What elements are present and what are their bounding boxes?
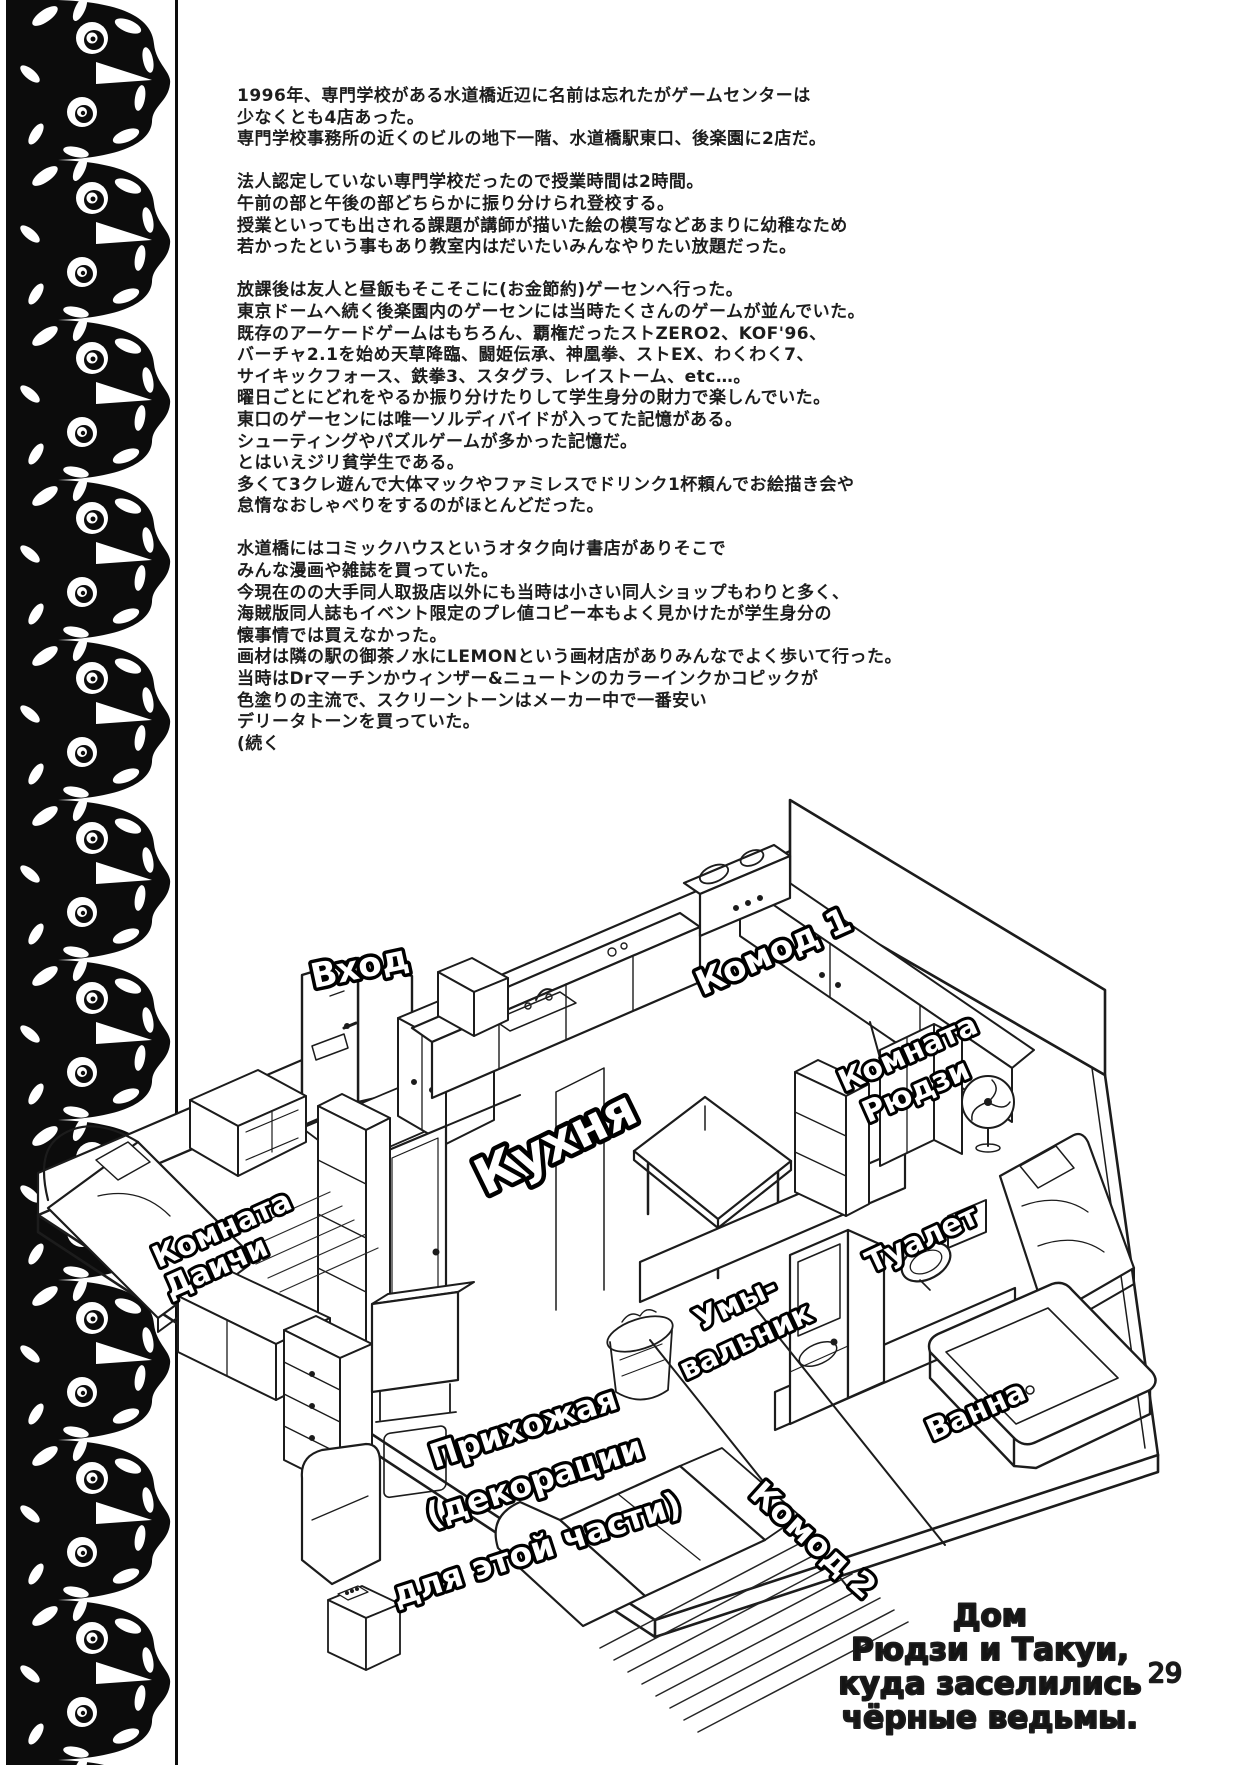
- caption-line-1: Дом: [953, 1598, 1027, 1634]
- floorplan-drawing: Вход Комод 1 Кухня Комната Рюдзи Комната…: [0, 0, 1250, 1765]
- caption-line-2: Рюдзи и Такуи,: [851, 1632, 1129, 1668]
- manga-page: 1996年、専門学校がある水道橋近辺に名前は忘れたがゲームセンターは少なくとも4…: [0, 0, 1250, 1765]
- phone-stand: [328, 1586, 400, 1670]
- caption: Дом Рюдзи и Такуи, куда заселились чёрны…: [838, 1598, 1141, 1736]
- caption-line-4: чёрные ведьмы.: [842, 1700, 1138, 1736]
- page-number: 29: [1148, 1658, 1182, 1689]
- caption-line-3: куда заселились: [838, 1666, 1141, 1702]
- hall-armchair: [302, 1444, 380, 1584]
